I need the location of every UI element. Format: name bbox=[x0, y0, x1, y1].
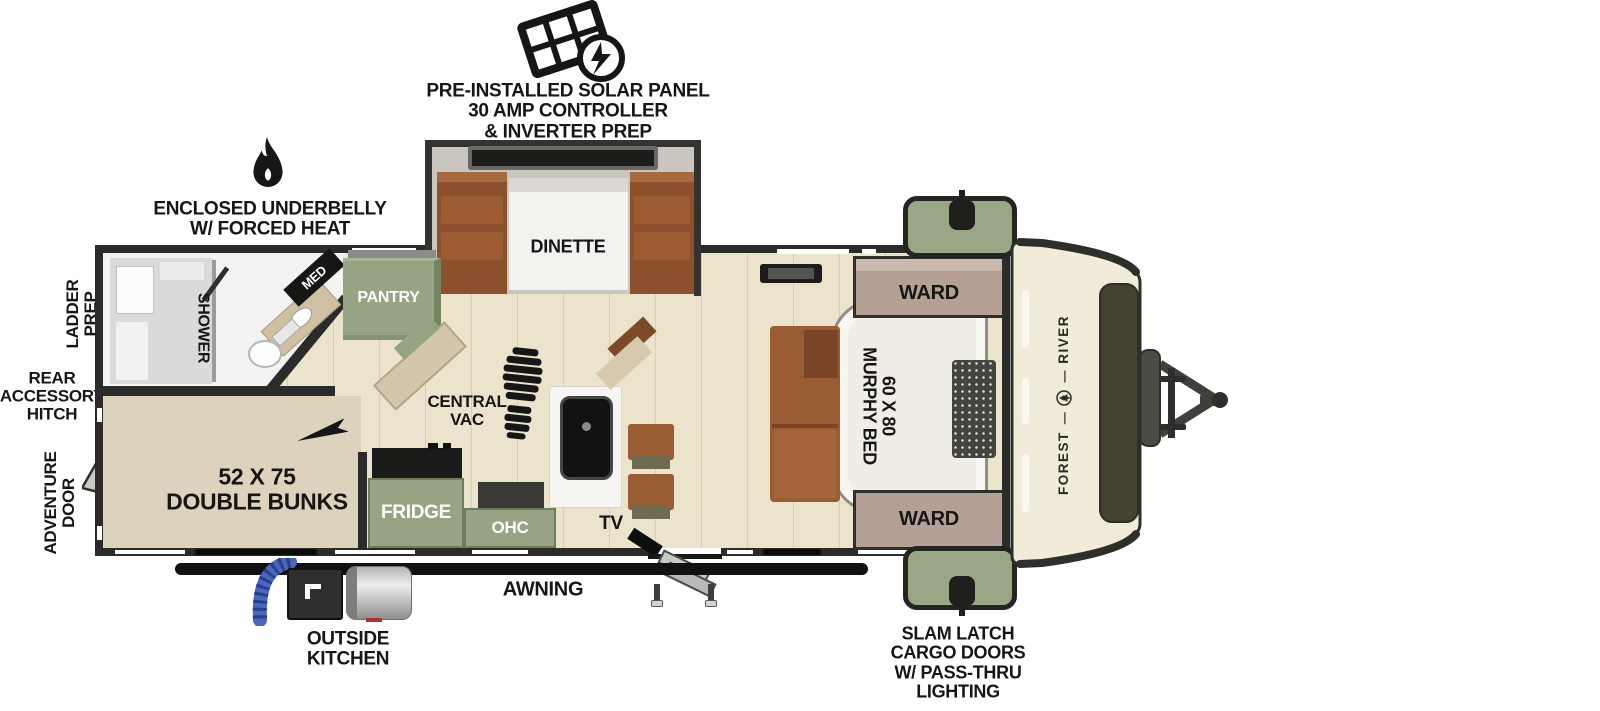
rear-hitch-line-1: REAR bbox=[0, 370, 104, 388]
solar-line-1: PRE-INSTALLED SOLAR PANEL bbox=[426, 82, 709, 102]
ward-top-edge bbox=[856, 259, 1002, 271]
ohc-cabinet: OHC bbox=[464, 508, 556, 548]
window-top-right-2 bbox=[862, 249, 876, 254]
murphy-line-2: MURPHY BED bbox=[859, 347, 878, 465]
bunks-line-1: 52 X 75 bbox=[166, 464, 348, 489]
slam-latch-line-2: CARGO DOORS bbox=[891, 644, 1026, 663]
dinette-cushion-4 bbox=[634, 232, 690, 260]
dinette-cushion-3 bbox=[634, 196, 690, 224]
chair-2-base bbox=[632, 506, 670, 519]
window-rear-lower bbox=[97, 526, 102, 540]
slam-latch-line-4: LIGHTING bbox=[891, 682, 1026, 701]
slam-latch-label: SLAM LATCH CARGO DOORS W/ PASS-THRU LIGH… bbox=[891, 625, 1026, 702]
step-foot-2 bbox=[705, 600, 717, 607]
sofa-seam bbox=[772, 424, 838, 428]
wall-face-2 bbox=[335, 550, 415, 554]
underbelly-line-1: ENCLOSED UNDERBELLY bbox=[153, 200, 386, 220]
ward-top-label: WARD bbox=[899, 283, 959, 304]
solar-callout: PRE-INSTALLED SOLAR PANEL 30 AMP CONTROL… bbox=[426, 82, 709, 143]
dinette-cushion-2 bbox=[441, 232, 503, 260]
wall-face-4 bbox=[727, 550, 753, 554]
shower-fixture-2 bbox=[116, 322, 148, 380]
window-rear-upper bbox=[97, 408, 102, 422]
regulator-mark bbox=[366, 618, 382, 622]
brand-word-1: FOREST bbox=[1057, 431, 1071, 495]
bunks-line-2: DOUBLE BUNKS bbox=[166, 489, 348, 514]
rear-hitch-line-3: HITCH bbox=[0, 406, 104, 424]
brand-mark: FOREST — — RIVER bbox=[1056, 315, 1072, 495]
brand-word-2: RIVER bbox=[1057, 315, 1071, 364]
counter-recess bbox=[478, 482, 544, 508]
underbelly-line-2: W/ FORCED HEAT bbox=[153, 220, 386, 240]
kitchen-sink bbox=[560, 396, 613, 480]
outside-kitchen-line-2: KITCHEN bbox=[307, 650, 389, 670]
flame-icon bbox=[249, 136, 287, 188]
step-leg-2 bbox=[708, 584, 714, 600]
pantry-label: PANTRY bbox=[357, 289, 419, 306]
dinette-table bbox=[509, 178, 628, 290]
rear-hitch-line-2: ACCESSORY bbox=[0, 388, 104, 406]
wall-fridge-left bbox=[358, 452, 367, 548]
fridge-label: FRIDGE bbox=[381, 503, 451, 523]
dinette-window bbox=[468, 146, 658, 170]
murphy-bed-label: 60 X 80 MURPHY BED bbox=[859, 347, 898, 465]
cargo-door-top-stem bbox=[959, 190, 965, 200]
bed-mesh-panel bbox=[952, 360, 996, 458]
sofa-seat-cushion bbox=[774, 430, 836, 498]
outside-faucet-stem bbox=[305, 584, 310, 599]
dinette-bench-left-top bbox=[437, 172, 507, 182]
window-bottom-bunks bbox=[195, 549, 317, 555]
fridge-top-appliance bbox=[372, 448, 462, 478]
fridge-cabinet: FRIDGE bbox=[368, 478, 464, 548]
step-foot-1 bbox=[651, 600, 663, 607]
chair-2 bbox=[628, 474, 674, 510]
tv-label: TV bbox=[599, 514, 623, 534]
central-vac-line-1: CENTRAL bbox=[427, 393, 506, 411]
underbelly-callout: ENCLOSED UNDERBELLY W/ FORCED HEAT bbox=[153, 200, 386, 241]
outside-sink-box bbox=[287, 568, 343, 620]
dinette-label: DINETTE bbox=[531, 237, 606, 256]
sofa-back-cushion bbox=[804, 330, 838, 378]
floorplan-canvas: PRE-INSTALLED SOLAR PANEL 30 AMP CONTROL… bbox=[0, 0, 1600, 711]
solar-panel-icon bbox=[515, 0, 631, 88]
step-leg-1 bbox=[654, 584, 660, 600]
dinette-wall-right bbox=[694, 250, 701, 296]
ward-bottom: WARD bbox=[853, 490, 1005, 550]
wall-face-1 bbox=[115, 550, 185, 554]
ladder-prep-line-1: LADDER bbox=[64, 279, 82, 348]
outside-griddle-cap bbox=[346, 566, 357, 620]
outside-kitchen-line-1: OUTSIDE bbox=[307, 630, 389, 650]
shower-label: SHOWER bbox=[194, 293, 211, 363]
window-bottom-front bbox=[763, 549, 821, 555]
slam-latch-line-1: SLAM LATCH bbox=[891, 625, 1026, 644]
dinette-bench-right-top bbox=[630, 172, 694, 182]
dinette-table-edge bbox=[509, 178, 628, 192]
outside-kitchen-label: OUTSIDE KITCHEN bbox=[307, 630, 389, 671]
forest-river-logo-icon bbox=[1056, 390, 1072, 406]
chair-1-base bbox=[632, 456, 670, 469]
murphy-line-1: 60 X 80 bbox=[878, 347, 897, 465]
toilet-bowl bbox=[248, 340, 282, 368]
front-cap bbox=[1002, 228, 1242, 578]
shower-shelf bbox=[160, 262, 204, 280]
brand-separator-2: — bbox=[1058, 371, 1071, 383]
chair-1 bbox=[628, 424, 674, 460]
solar-line-2: 30 AMP CONTROLLER bbox=[426, 102, 709, 122]
cargo-door-bottom-latch bbox=[949, 576, 975, 606]
dinette-cushion-1 bbox=[441, 196, 503, 224]
faucet-icon bbox=[582, 422, 591, 431]
brand-separator-1: — bbox=[1058, 413, 1071, 425]
bunks-label: 52 X 75 DOUBLE BUNKS bbox=[166, 464, 348, 513]
rear-hitch-label: REAR ACCESSORY HITCH bbox=[0, 370, 104, 425]
ohc-label: OHC bbox=[492, 519, 529, 537]
appliance-knob-1 bbox=[428, 443, 438, 449]
cargo-door-top-latch bbox=[949, 200, 975, 230]
window-top-right bbox=[777, 249, 849, 254]
wall-bath-bottom bbox=[103, 386, 335, 396]
appliance-knob-2 bbox=[443, 443, 451, 449]
adventure-door-line-1: ADVENTURE bbox=[42, 451, 60, 554]
slam-latch-line-3: W/ PASS-THRU bbox=[891, 663, 1026, 682]
adventure-door-label: ADVENTURE DOOR bbox=[42, 451, 78, 554]
shower-fixture-1 bbox=[116, 266, 154, 314]
wall-face-3 bbox=[472, 550, 528, 554]
ward-bottom-label: WARD bbox=[899, 509, 959, 530]
cargo-door-bottom-stem bbox=[959, 606, 965, 616]
awning-label: AWNING bbox=[503, 579, 583, 600]
adventure-door-line-2: DOOR bbox=[60, 451, 78, 554]
roof-vent-inner bbox=[768, 268, 814, 279]
